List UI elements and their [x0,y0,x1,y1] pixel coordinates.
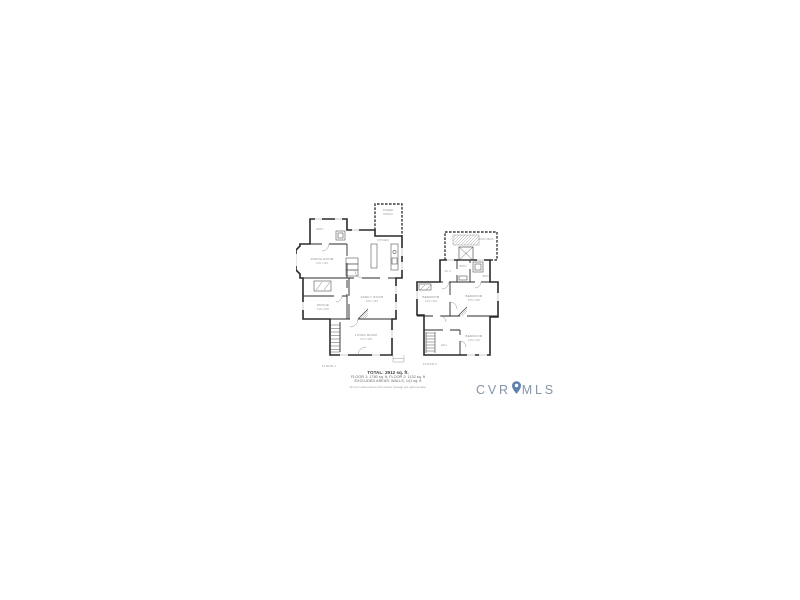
label-bed-left-dims: 12'0 x 11'0 [425,300,437,303]
label-bed-left: BEDROOM [423,295,440,299]
floor1-entry-steps [393,355,404,362]
label-bath-b: BATH [483,274,490,278]
floorplan-sheet: SCREEN PORCH BATH DINING ROOM 12'6 x 11'… [0,0,800,600]
label-screen-porch2: PORCH [383,212,392,216]
floor2-stairs [426,332,435,353]
label-office-dims: 11'6 x 10'6 [317,308,329,311]
label-bath-a: BATH [460,264,467,268]
label-bed-rear-dims: 12'6 x 11'0 [468,339,480,342]
label-bed-rear: BEDROOM [466,334,483,338]
label-kitchen: KITCHEN [377,238,389,242]
logo-prefix: CVR [476,383,511,397]
label-bed-main: BEDROOM [466,294,483,298]
label-living: LIVING ROOM [355,333,378,337]
label-wic: W.I.C. [444,269,451,273]
label-bath: BATH [317,227,324,231]
disclaimer-line: All room dimensions and square footage a… [330,385,446,389]
label-family-dims: 16'0 x 14'0 [366,300,379,303]
floor2-fixtures [419,262,483,290]
floor2-fireplace [458,307,467,316]
map-pin-icon [512,381,521,397]
label-bed-main-dims: 15'6 x 13'0 [468,299,481,302]
label-dining-dims: 12'6 x 11'6 [316,262,328,265]
label-living-dims: 17'0 x 13'0 [360,338,373,341]
label-roof-deck: ROOF DECK [478,237,494,241]
floor2-windows [416,259,499,356]
floor2-plan: ROOF DECK W.I.C. BATH BATH BEDROOM 12'0 … [415,225,507,367]
floor1-plan: SCREEN PORCH BATH DINING ROOM 12'6 x 11'… [296,200,420,372]
floor1-fireplace [358,309,368,319]
floor2-skylight [459,247,473,260]
floor2-deck-hatch [453,235,479,245]
excluded-sqft-line: EXCLUDED AREAS: WALLS, 141 sq. ft [330,379,446,383]
logo-suffix: MLS [522,383,556,397]
label-screen-porch: SCREEN [383,208,394,212]
cvrmls-logo: CVR MLS [476,381,556,399]
label-office: OFFICE [317,303,329,307]
label-hall: HALL [441,343,448,347]
label-dining: DINING ROOM [311,257,334,261]
floor1-stairs [330,325,340,352]
floor2-caption: FLOOR 2 [423,362,437,366]
label-family: FAMILY ROOM [361,295,384,299]
floor1-caption: FLOOR 1 [322,364,336,368]
sqft-summary: TOTAL: 2912 sq. ft. FLOOR 1: 1780 sq. ft… [330,370,446,389]
